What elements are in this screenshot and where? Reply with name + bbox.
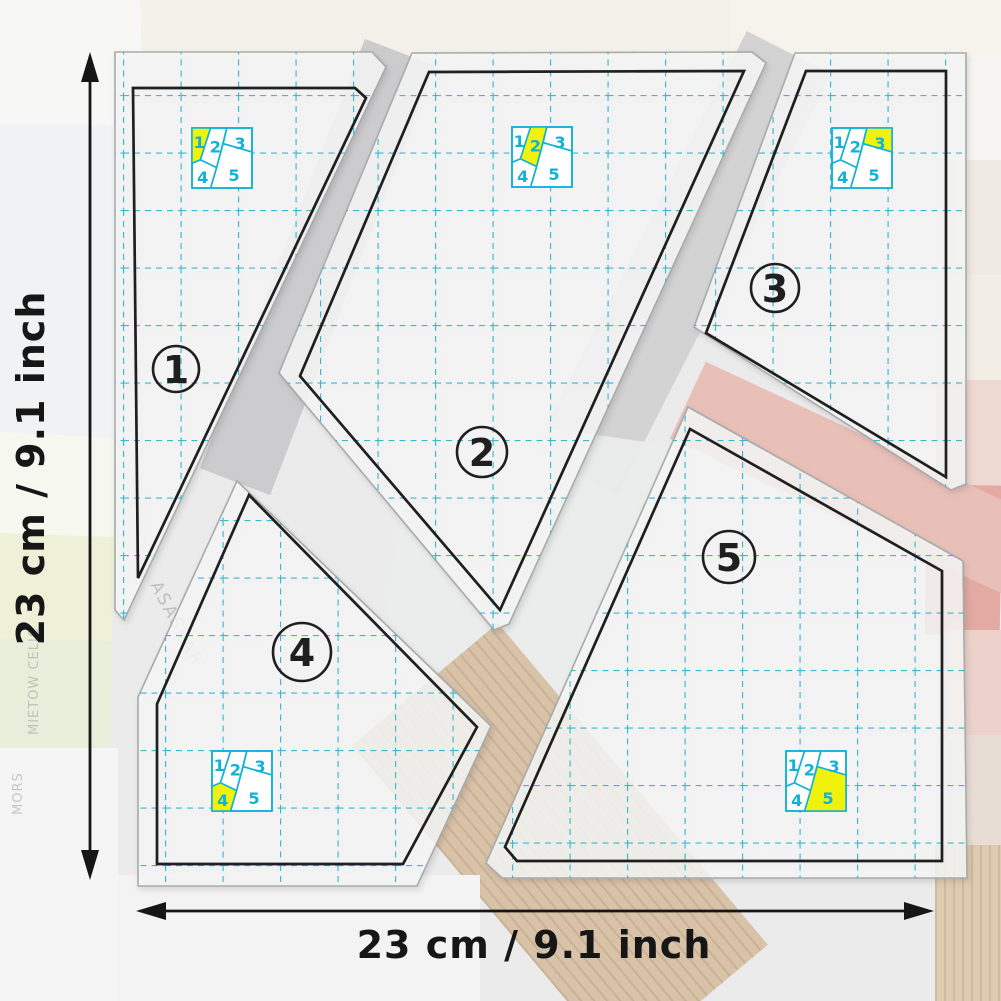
arrowhead-left-icon <box>136 902 166 920</box>
minimap-label-1: 1 <box>788 756 799 775</box>
minimap-label-3: 3 <box>554 133 565 152</box>
minimap-label-1: 1 <box>214 756 225 775</box>
minimap-label-2: 2 <box>230 761 241 780</box>
template-number: 3 <box>762 267 788 311</box>
minimap-label-3: 3 <box>828 757 839 776</box>
minimap-label-5: 5 <box>548 165 559 184</box>
vertical-dimension-label: 23 cm / 9.1 inch <box>9 291 53 646</box>
template-number: 5 <box>716 536 742 580</box>
minimap-label-2: 2 <box>850 138 861 157</box>
minimap-logo-template-5: 1 2 3 4 5 <box>786 751 846 811</box>
minimap-label-1: 1 <box>834 133 845 152</box>
arrowhead-up-icon <box>81 52 99 82</box>
minimap-label-3: 3 <box>234 134 245 153</box>
minimap-label-5: 5 <box>248 789 259 808</box>
watermark-vertical-2: MORS <box>11 772 26 815</box>
minimap-label-4: 4 <box>197 168 208 187</box>
minimap-label-4: 4 <box>791 791 802 810</box>
template-diagram: ASASKAR MIETOW CELIC MORS <box>0 0 1001 1001</box>
minimap-label-4: 4 <box>217 791 228 810</box>
minimap-label-4: 4 <box>517 167 528 186</box>
arrowhead-right-icon <box>904 902 934 920</box>
vertical-dimension: 23 cm / 9.1 inch <box>9 52 99 880</box>
minimap-label-5: 5 <box>822 789 833 808</box>
template-number: 2 <box>469 431 495 475</box>
minimap-label-4: 4 <box>837 168 848 187</box>
minimap-label-3: 3 <box>874 134 885 153</box>
arrowhead-down-icon <box>81 850 99 880</box>
horizontal-dimension: 23 cm / 9.1 inch <box>136 902 934 967</box>
minimap-label-5: 5 <box>868 166 879 185</box>
minimap-logo-template-2: 1 2 3 4 5 <box>512 127 572 187</box>
minimap-label-2: 2 <box>210 138 221 157</box>
product-photo: ASASKAR MIETOW CELIC MORS <box>0 0 1001 1001</box>
minimap-label-5: 5 <box>228 166 239 185</box>
minimap-logo-template-3: 1 2 3 4 5 <box>832 128 892 188</box>
minimap-label-2: 2 <box>530 137 541 156</box>
minimap-logo-template-4: 1 2 3 4 5 <box>212 751 272 811</box>
minimap-label-1: 1 <box>514 132 525 151</box>
minimap-label-1: 1 <box>194 133 205 152</box>
template-number: 4 <box>289 631 315 675</box>
minimap-logo-template-1: 1 2 3 4 5 <box>192 128 252 188</box>
template-number: 1 <box>163 348 189 392</box>
minimap-label-2: 2 <box>804 761 815 780</box>
horizontal-dimension-label: 23 cm / 9.1 inch <box>357 923 712 967</box>
minimap-label-3: 3 <box>254 757 265 776</box>
